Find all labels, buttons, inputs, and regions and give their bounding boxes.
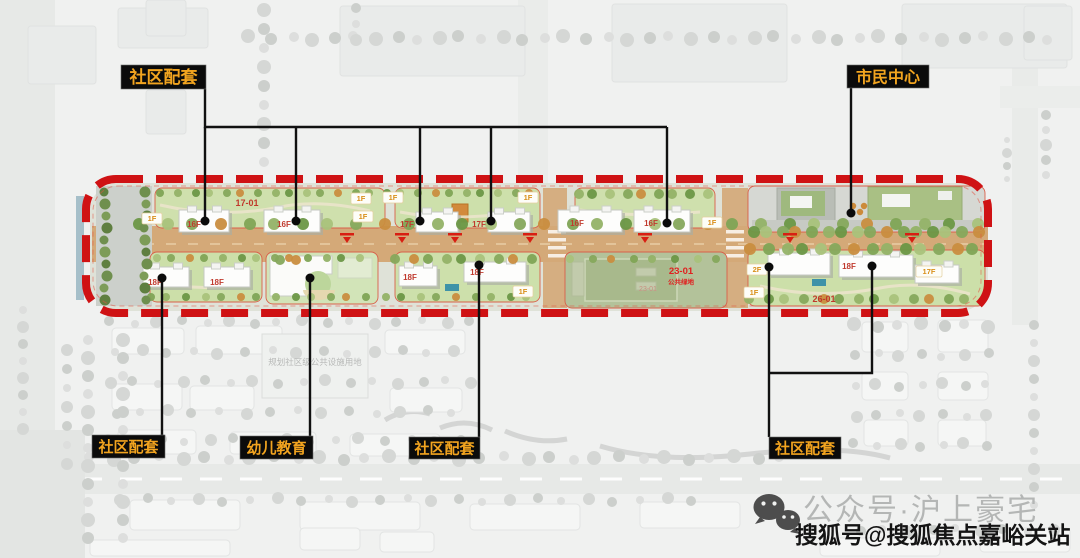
callout-dot (487, 217, 496, 226)
plan-label: 17-01 (235, 198, 258, 208)
callout-dot (475, 261, 484, 270)
plan-label: 1F (359, 212, 368, 221)
plan-label: 1F (708, 218, 717, 227)
callout-dot (201, 217, 210, 226)
callout-label: 社区配套 (129, 67, 199, 87)
plan-label: 1F (519, 287, 528, 296)
site-plan-page: 规划社区级公共设施用地 17-0116F16F1F1F1F17F17F1F1F1… (0, 0, 1080, 558)
plan-label: 1F (357, 194, 366, 203)
plan-label: 1F (148, 214, 157, 223)
plan-label: 2F (753, 265, 762, 274)
callout-label: 幼儿教育 (246, 439, 306, 457)
background-parcel-note: 规划社区级公共设施用地 (268, 357, 362, 367)
callout-dot (847, 209, 856, 218)
plan-label: 26-01 (812, 294, 835, 304)
callout-dot (306, 274, 315, 283)
plan-label: 公共绿地 (668, 277, 695, 286)
plan-label: 17F (400, 220, 414, 229)
plan-label: 18F (403, 273, 417, 282)
plan-label: 16F (277, 220, 291, 229)
plan-label: 18F (470, 268, 484, 277)
site-plan-image: 规划社区级公共设施用地 17-0116F16F1F1F1F17F17F1F1F1… (0, 0, 1080, 558)
plan-label: 1F (524, 193, 533, 202)
plan-label: 16F (570, 219, 584, 228)
sohu-watermark-text: 搜狐号@搜狐焦点嘉峪关站 (795, 522, 1070, 548)
callout-dot (292, 217, 301, 226)
plan-label: 17F (923, 267, 936, 276)
plan-label: 23-01 (639, 286, 657, 293)
callout-label: 社区配套 (413, 439, 475, 457)
plan-label: 18F (210, 278, 224, 287)
plan-label: 18F (842, 262, 856, 271)
callout-label: 市民中心 (856, 67, 920, 86)
plan-label: 1F (389, 193, 398, 202)
callout-dot (868, 262, 877, 271)
callout-dot (416, 217, 425, 226)
plan-label: 16F (187, 220, 201, 229)
callout-label: 社区配套 (97, 438, 159, 456)
callout-dot (158, 274, 167, 283)
plan-label: 23-01 (669, 266, 694, 277)
plan-label: 16F (644, 219, 658, 228)
callout-dot (663, 219, 672, 228)
plan-label: 17F (472, 220, 486, 229)
callout-dot (765, 263, 774, 272)
plan-label: 1F (750, 288, 759, 297)
callout-label: 社区配套 (774, 439, 836, 457)
